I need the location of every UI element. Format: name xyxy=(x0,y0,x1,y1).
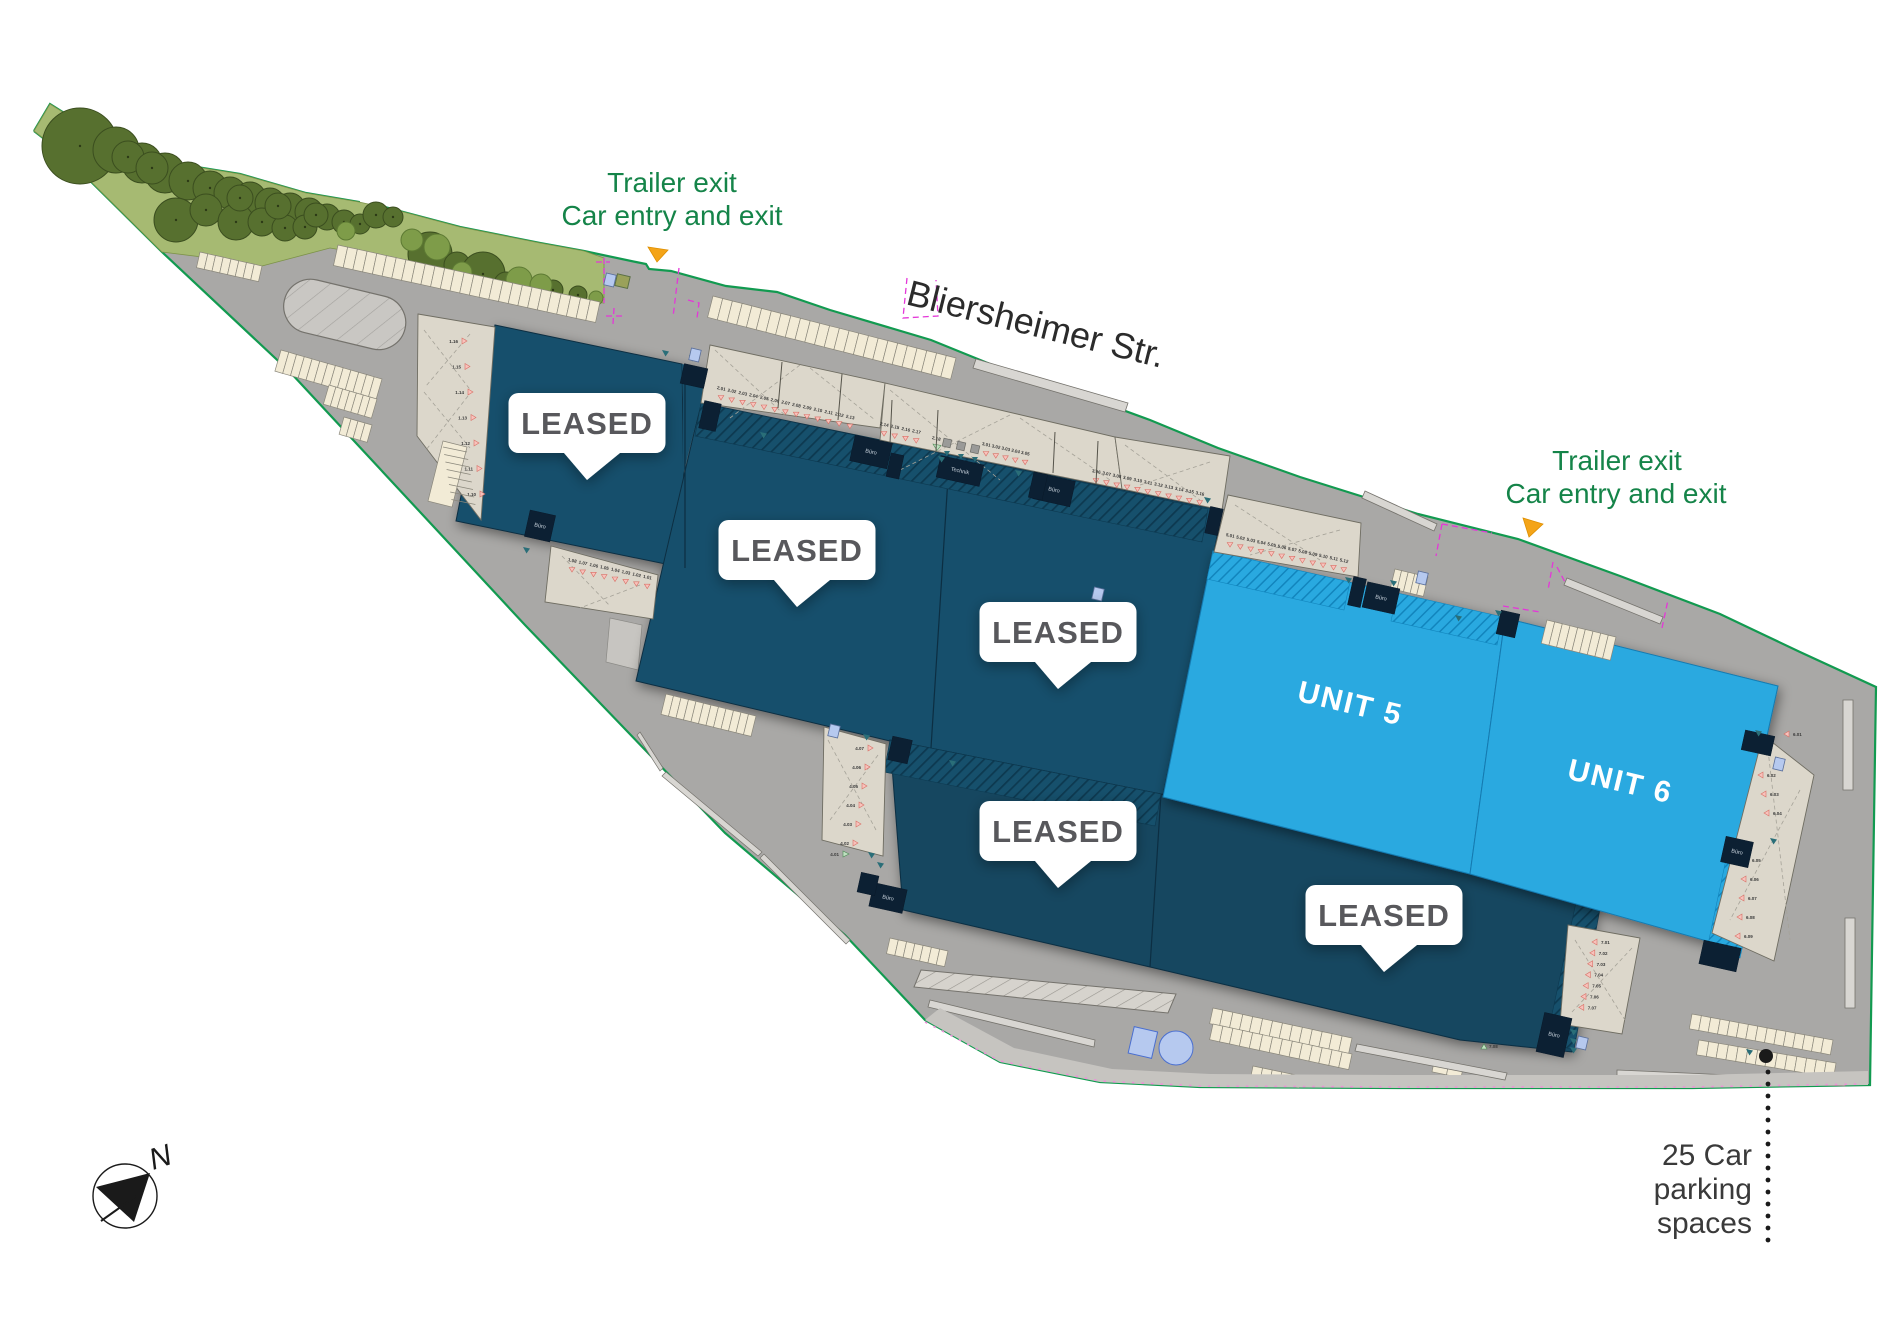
svg-text:4.06: 4.06 xyxy=(852,765,861,770)
svg-text:7.05: 7.05 xyxy=(1592,984,1601,989)
svg-text:7.06: 7.06 xyxy=(1590,995,1599,1000)
svg-text:6.03: 6.03 xyxy=(1770,792,1779,797)
svg-text:7.01: 7.01 xyxy=(1601,940,1610,945)
svg-text:Trailer exit: Trailer exit xyxy=(1552,445,1682,476)
svg-text:6.05: 6.05 xyxy=(1752,858,1761,863)
svg-text:6.08: 6.08 xyxy=(1746,915,1755,920)
svg-text:LEASED: LEASED xyxy=(731,533,863,568)
svg-text:1.14: 1.14 xyxy=(455,390,464,395)
svg-text:1.16: 1.16 xyxy=(449,339,458,344)
svg-text:4.03: 4.03 xyxy=(843,822,852,827)
svg-text:25 Car: 25 Car xyxy=(1662,1139,1752,1172)
svg-text:spaces: spaces xyxy=(1657,1207,1752,1240)
svg-text:4.05: 4.05 xyxy=(849,784,858,789)
svg-text:LEASED: LEASED xyxy=(521,406,653,441)
svg-text:1.13: 1.13 xyxy=(458,416,467,421)
svg-text:6.01: 6.01 xyxy=(1793,732,1802,737)
svg-text:4.04: 4.04 xyxy=(846,803,855,808)
svg-text:4.01: 4.01 xyxy=(830,852,839,857)
svg-text:parking: parking xyxy=(1654,1173,1752,1206)
svg-text:LEASED: LEASED xyxy=(992,814,1124,849)
svg-text:7.08: 7.08 xyxy=(1489,1044,1498,1049)
svg-text:N: N xyxy=(145,1138,176,1176)
svg-text:LEASED: LEASED xyxy=(992,615,1124,650)
svg-text:6.09: 6.09 xyxy=(1744,934,1753,939)
svg-text:6.02: 6.02 xyxy=(1767,773,1776,778)
svg-text:6.06: 6.06 xyxy=(1750,877,1759,882)
svg-text:1.12: 1.12 xyxy=(461,441,470,446)
svg-text:1.15: 1.15 xyxy=(452,365,461,370)
svg-text:4.02: 4.02 xyxy=(840,841,849,846)
svg-text:4.07: 4.07 xyxy=(855,746,864,751)
svg-text:Car entry and exit: Car entry and exit xyxy=(1506,478,1727,509)
svg-text:6.07: 6.07 xyxy=(1748,896,1757,901)
svg-text:6.04: 6.04 xyxy=(1773,811,1782,816)
svg-text:7.07: 7.07 xyxy=(1588,1005,1597,1010)
svg-text:7.03: 7.03 xyxy=(1597,962,1606,967)
svg-text:Trailer exit: Trailer exit xyxy=(607,167,737,198)
svg-text:Car entry and exit: Car entry and exit xyxy=(562,200,783,231)
svg-text:7.04: 7.04 xyxy=(1594,973,1603,978)
svg-text:LEASED: LEASED xyxy=(1318,898,1450,933)
svg-text:7.02: 7.02 xyxy=(1599,951,1608,956)
